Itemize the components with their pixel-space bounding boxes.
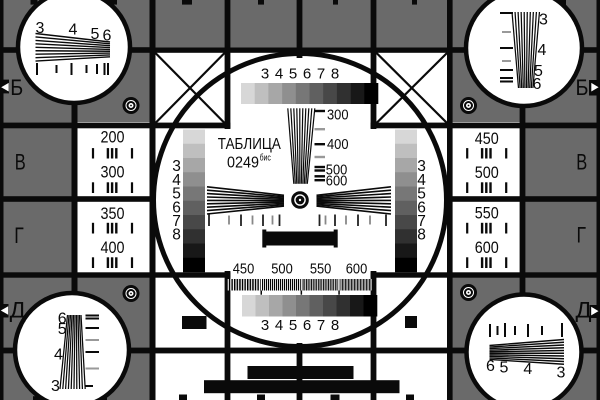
svg-text:4: 4: [54, 347, 63, 364]
svg-text:4: 4: [69, 22, 78, 39]
svg-text:500: 500: [271, 262, 293, 278]
svg-text:В: В: [15, 150, 26, 175]
svg-text:450: 450: [475, 130, 499, 148]
svg-text:7: 7: [317, 66, 325, 83]
svg-text:600: 600: [475, 239, 499, 257]
svg-text:5: 5: [58, 321, 67, 338]
svg-text:4: 4: [275, 66, 283, 83]
svg-text:Д: Д: [576, 298, 592, 323]
svg-text:450: 450: [233, 262, 255, 278]
svg-text:Г: Г: [577, 223, 587, 248]
svg-text:4: 4: [523, 361, 532, 378]
svg-text:3: 3: [261, 317, 269, 334]
svg-text:В: В: [576, 150, 587, 175]
svg-text:3: 3: [539, 11, 548, 28]
svg-text:550: 550: [310, 262, 332, 278]
svg-text:5: 5: [500, 359, 509, 376]
svg-text:200: 200: [101, 129, 125, 147]
svg-text:8: 8: [331, 317, 339, 334]
svg-text:8: 8: [172, 227, 181, 244]
svg-text:ТАБЛИЦА: ТАБЛИЦА: [218, 136, 281, 153]
svg-text:3: 3: [51, 378, 60, 395]
svg-text:6: 6: [533, 76, 542, 93]
svg-text:бис: бис: [260, 153, 272, 163]
svg-text:6: 6: [103, 28, 112, 45]
svg-text:400: 400: [101, 239, 125, 257]
svg-text:600: 600: [326, 173, 348, 189]
svg-text:400: 400: [327, 137, 349, 153]
svg-text:Б: Б: [10, 75, 23, 100]
svg-text:5: 5: [289, 317, 297, 334]
svg-text:4: 4: [538, 42, 547, 59]
svg-text:4: 4: [275, 317, 283, 334]
svg-text:6: 6: [486, 358, 495, 375]
svg-text:550: 550: [475, 205, 499, 223]
svg-text:8: 8: [331, 66, 339, 83]
svg-text:5: 5: [91, 26, 100, 43]
svg-text:5: 5: [289, 66, 297, 83]
svg-text:Г: Г: [14, 223, 24, 248]
svg-text:500: 500: [475, 164, 499, 182]
svg-text:Д: Д: [10, 298, 26, 323]
svg-text:300: 300: [327, 107, 349, 123]
svg-text:3: 3: [557, 364, 566, 381]
svg-text:8: 8: [417, 227, 426, 244]
svg-text:7: 7: [317, 317, 325, 334]
svg-text:350: 350: [101, 205, 125, 223]
svg-text:6: 6: [303, 317, 311, 334]
svg-text:0249: 0249: [227, 155, 259, 172]
svg-text:Б: Б: [576, 75, 589, 100]
svg-text:3: 3: [36, 20, 45, 37]
svg-text:6: 6: [303, 66, 311, 83]
svg-text:300: 300: [101, 164, 125, 182]
svg-text:600: 600: [346, 262, 368, 278]
svg-text:3: 3: [261, 66, 269, 83]
